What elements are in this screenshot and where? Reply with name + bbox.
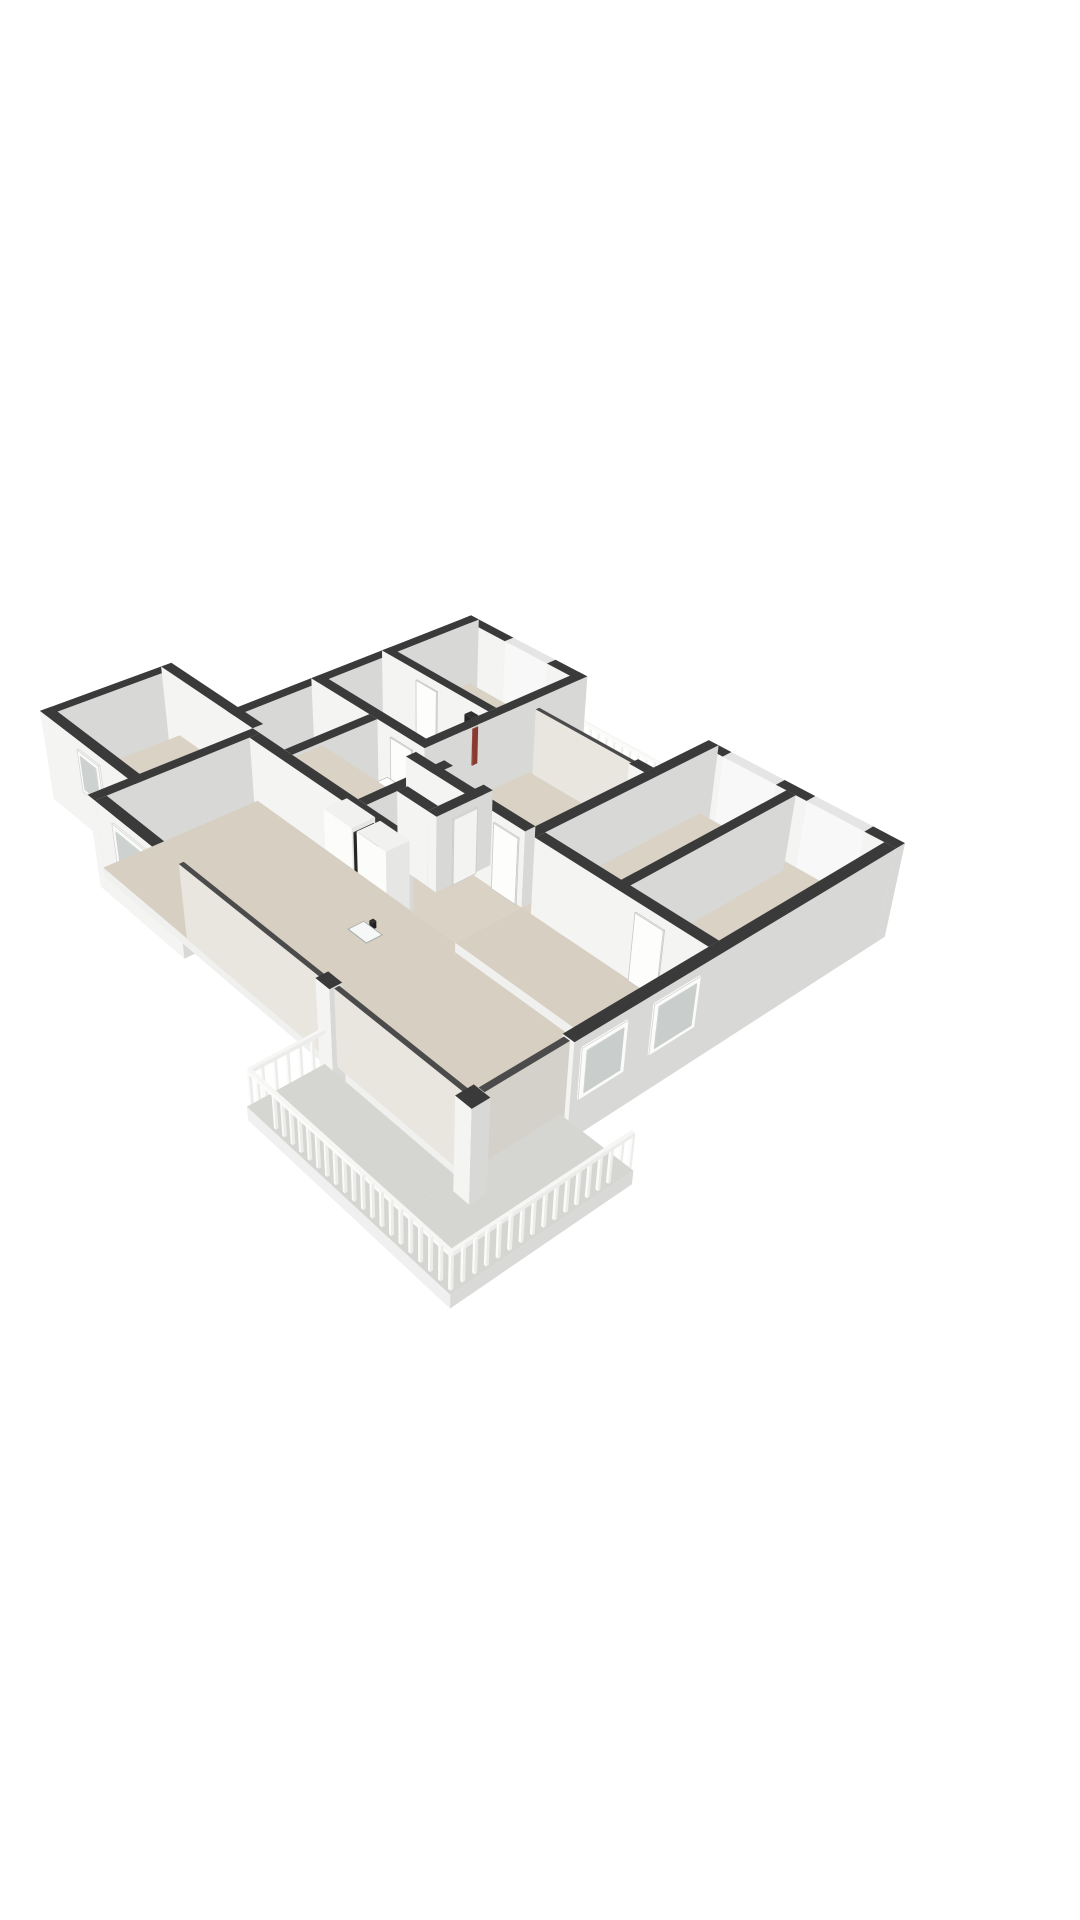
railing-balcony2-south-slat-18 <box>410 1218 413 1254</box>
door-toilet <box>453 808 478 885</box>
railing-balcony2-south-slat-18 <box>408 1217 411 1254</box>
railing-balcony2-south-slat-17 <box>398 1209 401 1246</box>
building-group <box>40 615 905 1308</box>
railing-balcony2-south-slat-19 <box>418 1226 420 1263</box>
column-corner <box>453 1096 471 1205</box>
railing-balcony2-south-slat-17 <box>401 1209 404 1245</box>
railing-balcony2-south-slat-16 <box>391 1200 394 1236</box>
floorplan-3d-rendering <box>0 0 1080 1920</box>
railing-balcony2-south-slat-19 <box>420 1227 423 1263</box>
railing-balcony2-south-slat-21 <box>440 1245 443 1281</box>
railing-balcony2-south-slat-20 <box>428 1235 431 1272</box>
railing-balcony2-south-slat-20 <box>430 1236 433 1272</box>
meter-accent <box>472 727 478 766</box>
floorplan-canvas <box>0 0 1080 1920</box>
wall-toilet-east <box>427 811 436 893</box>
